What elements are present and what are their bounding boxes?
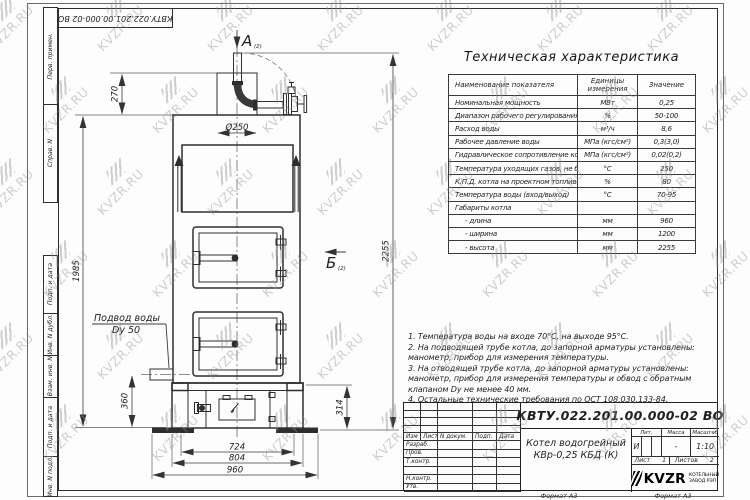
row-unit: МПа (кгс/см²): [578, 135, 638, 148]
product-name-line1: Котел водогрейный: [521, 438, 631, 450]
kvzr-logo-text: KVZR: [644, 471, 686, 487]
middle-door: [193, 227, 286, 288]
rev-cell: [438, 418, 473, 425]
rev-cell: [438, 403, 473, 410]
water-inlet-label-2: Dy 50: [112, 325, 140, 336]
rev-cell: [404, 403, 421, 410]
sign-cell: [497, 467, 520, 475]
lit-cell-3: [652, 437, 662, 457]
sign-label-cell: Н.контр.: [404, 475, 438, 483]
lower-door: [193, 312, 286, 376]
rev-cell: [404, 418, 421, 425]
sign-label-cell: Разраб.: [404, 441, 438, 449]
rev-header-cell: Лист: [421, 433, 438, 440]
table-row: Рабочее давление водыМПа (кгс/см²)0,3(3,…: [449, 135, 696, 148]
product-name-cell: Котел водогрейный КВр-0,25 КБД (К): [521, 429, 631, 492]
water-inlet-label-1: Подвод воды: [94, 313, 161, 324]
sign-cell: [438, 450, 473, 458]
dim-270: 270: [111, 86, 121, 102]
title-block-right: Лит. Масса Масштаб И - 1:10 Лист 1 Листо…: [631, 429, 719, 492]
rev-cell: [473, 403, 497, 410]
table-row: Температура уходящих газов, не более°С25…: [449, 161, 696, 174]
spec-table-title: Техническая характеристика: [448, 50, 695, 65]
table-row: Габариты котла: [449, 201, 696, 214]
rev-cell: [421, 411, 438, 418]
lit-cell-2: [642, 437, 652, 457]
dim-314: 314: [336, 399, 346, 415]
sign-cell: [497, 441, 520, 449]
row-value: 0,3(3,0): [638, 135, 696, 148]
rev-cell: [421, 426, 438, 433]
sign-label-cell: Пров.: [404, 450, 438, 458]
sign-cell: [473, 484, 497, 492]
spec-table: Наименование показателя Единицы измерени…: [448, 74, 696, 254]
company-name: КОТЕЛЬНЫЙ ЗАВОД РЭП: [689, 473, 719, 484]
sign-cell: [497, 458, 520, 466]
row-value: 0,02(0,2): [638, 148, 696, 161]
sheet-cell: Лист 1: [632, 457, 670, 465]
format-label-1: Формат А3: [528, 492, 590, 500]
row-unit: мм: [578, 214, 638, 227]
sign-cell: [438, 484, 473, 492]
rev-cell: [404, 411, 421, 418]
rev-cell: [473, 411, 497, 418]
row-unit: мм: [578, 241, 638, 254]
table-row: - длинамм960: [449, 214, 696, 227]
table-row: Номинальная мощностьМВт0,25: [449, 96, 696, 109]
sign-cell: [473, 475, 497, 483]
title-block-doc-number: КВТУ.022.201.00.000-02 ВО: [521, 403, 719, 429]
base-ash-box: [152, 383, 318, 433]
row-unit: [578, 201, 638, 214]
sign-row: [404, 467, 520, 476]
row-unit: °С: [578, 188, 638, 201]
sign-cell: [497, 475, 520, 483]
sheets-cell: Листов 2: [670, 457, 719, 465]
sign-row: Утв.: [404, 484, 520, 493]
row-value: 8,6: [638, 122, 696, 135]
sign-cell: [438, 475, 473, 483]
rev-header-cell: Подп.: [473, 433, 497, 440]
format-label-2: Формат А3: [642, 492, 704, 500]
note-item: 2. На подводящей трубе котла, до запорно…: [408, 343, 714, 364]
rev-empty-row: [404, 426, 520, 434]
table-row: - высотамм2255: [449, 241, 696, 254]
rev-header-cell: N докум.: [438, 433, 473, 440]
row-name: - высота: [449, 241, 578, 254]
title-block: ИзмЛистN докум.Подп.ДатаРазраб.Пров.Т.ко…: [403, 402, 718, 491]
lit-mass-scale-header: Лит. Масса Масштаб: [632, 429, 719, 437]
dim-724: 724: [229, 443, 245, 453]
note-item: 3. На отводящей трубе котла, до запорной…: [408, 364, 714, 396]
lit-mass-scale-values: И - 1:10: [632, 437, 719, 457]
row-name: Номинальная мощность: [449, 96, 578, 109]
rev-cell: [473, 418, 497, 425]
scale-header: Масштаб: [691, 429, 719, 437]
row-unit: °С: [578, 161, 638, 174]
rev-cell: [497, 426, 520, 433]
sign-cell: [473, 441, 497, 449]
col-header-units: Единицы измерения: [578, 75, 638, 96]
rev-cell: [473, 426, 497, 433]
row-name: Температура воды (вход/выход): [449, 188, 578, 201]
sheet-count-row: Лист 1 Листов 2: [632, 457, 719, 465]
sign-row: Н.контр.: [404, 475, 520, 484]
kvzr-logo-icon: [630, 471, 642, 486]
sign-label-cell: Т.контр.: [404, 458, 438, 466]
row-name: Диапазон рабочего регулирования: [449, 109, 578, 122]
row-unit: м³/ч: [578, 122, 638, 135]
sign-cell: [497, 450, 520, 458]
row-name: - ширина: [449, 227, 578, 240]
row-unit: %: [578, 109, 638, 122]
rev-header-row: ИзмЛистN докум.Подп.Дата: [404, 433, 520, 441]
row-unit: %: [578, 175, 638, 188]
sign-label-cell: Утв.: [404, 484, 438, 492]
dim-960: 960: [227, 466, 243, 476]
rev-empty-row: [404, 411, 520, 419]
view-a-label: А: [241, 32, 252, 50]
table-row: Температура воды (вход/выход)°С70-95: [449, 188, 696, 201]
row-value: 70-95: [638, 188, 696, 201]
row-value: 0,25: [638, 96, 696, 109]
col-header-value: Значение: [638, 75, 696, 96]
sign-cell: [473, 458, 497, 466]
upper-panel: [175, 145, 301, 212]
view-b-label: Б: [326, 254, 336, 272]
row-value: 50-100: [638, 109, 696, 122]
rev-cell: [421, 418, 438, 425]
spec-table-header-row: Наименование показателя Единицы измерени…: [449, 75, 696, 96]
rev-cell: [404, 426, 421, 433]
row-value: 1200: [638, 227, 696, 240]
dim-360: 360: [121, 393, 131, 409]
table-row: - ширинамм1200: [449, 227, 696, 240]
water-inlet-leader: [166, 324, 169, 368]
row-name: - длина: [449, 214, 578, 227]
table-row: Диапазон рабочего регулирования%50-100: [449, 109, 696, 122]
row-name: Гидравлическое сопротивление котла: [449, 148, 578, 161]
product-name-line2: КВр-0,25 КБД (К): [521, 450, 631, 462]
dim-2255: 2255: [382, 240, 392, 262]
row-unit: МВт: [578, 96, 638, 109]
row-value: 80: [638, 175, 696, 188]
row-name: Температура уходящих газов, не более: [449, 161, 578, 174]
row-value: [638, 201, 696, 214]
row-name: Расход воды: [449, 122, 578, 135]
rev-header-cell: Изм: [404, 433, 421, 440]
view-a-ref: (2): [254, 44, 262, 50]
table-row: Гидравлическое сопротивление котлаМПа (к…: [449, 148, 696, 161]
rev-empty-row: [404, 403, 520, 411]
row-value: 250: [638, 161, 696, 174]
row-value: 2255: [638, 241, 696, 254]
sign-row: Разраб.: [404, 441, 520, 450]
rev-header-cell: Дата: [497, 433, 520, 440]
sign-row: Т.контр.: [404, 458, 520, 467]
rev-cell: [438, 411, 473, 418]
row-value: 960: [638, 214, 696, 227]
row-name: К.П.Д. котла на проектном топливе: [449, 175, 578, 188]
notes: 1. Температура воды на входе 70°С, на вы…: [408, 332, 714, 406]
row-unit: МПа (кгс/см²): [578, 148, 638, 161]
col-header-name: Наименование показателя: [449, 75, 578, 96]
sign-cell: [473, 467, 497, 475]
dim-1985: 1985: [72, 260, 82, 282]
sign-cell: [497, 484, 520, 492]
rev-empty-row: [404, 418, 520, 426]
row-name: Габариты котла: [449, 201, 578, 214]
view-b-ref: (2): [338, 266, 346, 272]
sign-cell: [438, 441, 473, 449]
row-unit: мм: [578, 227, 638, 240]
dim-804: 804: [229, 454, 245, 464]
sign-cell: [473, 450, 497, 458]
row-name: Рабочее давление воды: [449, 135, 578, 148]
sign-cell: [438, 467, 473, 475]
rev-cell: [438, 426, 473, 433]
dimension-lines: [83, 55, 393, 476]
dim-250: Ø250: [225, 122, 249, 133]
mass-header: Масса: [662, 429, 692, 437]
table-row: К.П.Д. котла на проектном топливе%80: [449, 175, 696, 188]
company-logo-cell: KVZR КОТЕЛЬНЫЙ ЗАВОД РЭП: [632, 465, 719, 492]
lit-value: И: [632, 437, 642, 457]
rev-cell: [421, 403, 438, 410]
revision-grid: ИзмЛистN докум.Подп.ДатаРазраб.Пров.Т.ко…: [404, 403, 521, 492]
mass-value: -: [662, 437, 692, 457]
table-row: Расход водым³/ч8,6: [449, 122, 696, 135]
lit-header: Лит.: [632, 429, 662, 437]
sign-label-cell: [404, 467, 438, 475]
drawing-sheet: КВТУ.022.201.00.000-02 ВО Перв. примен.С…: [0, 0, 750, 500]
top-valve: [284, 83, 307, 115]
note-item: 1. Температура воды на входе 70°С, на вы…: [408, 332, 714, 343]
scale-value: 1:10: [691, 437, 719, 457]
sign-cell: [438, 458, 473, 466]
sign-row: Пров.: [404, 450, 520, 459]
